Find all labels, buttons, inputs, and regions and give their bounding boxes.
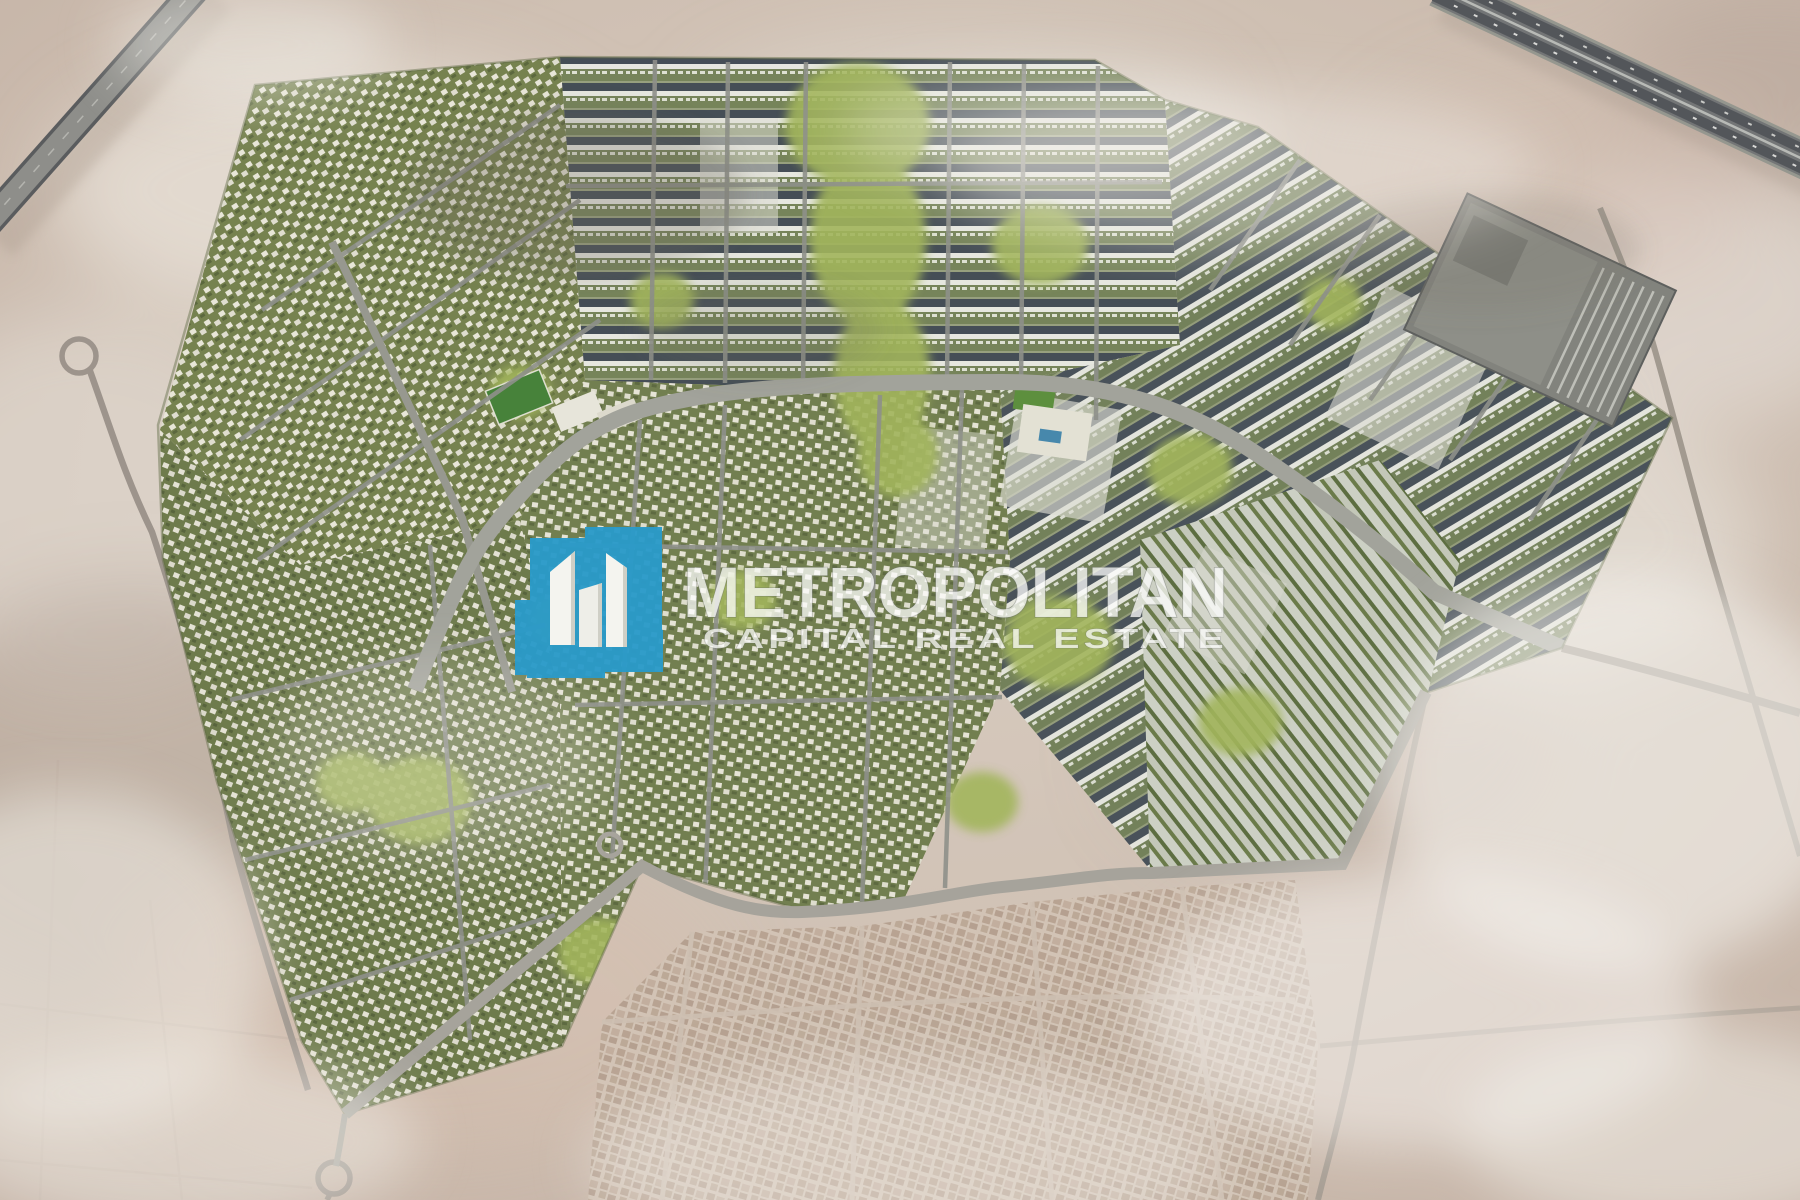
masterplan-aerial-view: METROPOLITAN CAPITAL REAL ESTATE <box>0 0 1800 1200</box>
watermark-subtitle: CAPITAL REAL ESTATE <box>703 623 1228 654</box>
watermark-title: METROPOLITAN <box>683 554 1228 633</box>
